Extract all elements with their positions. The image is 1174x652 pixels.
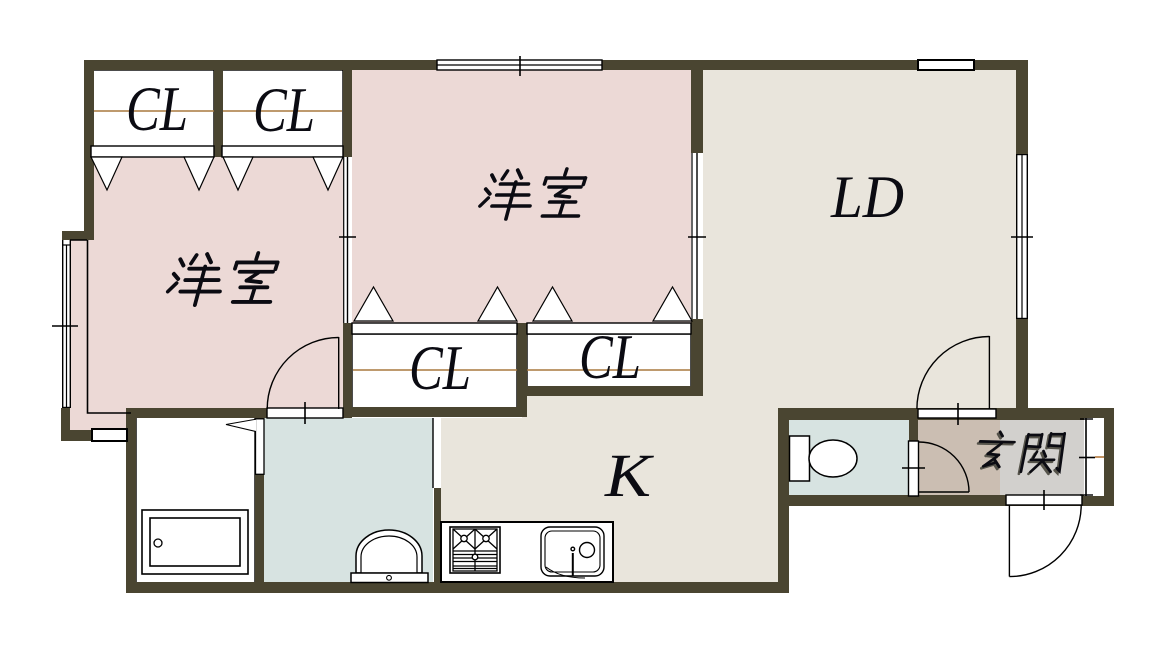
svg-text:CL: CL [409,333,471,403]
svg-text:CL: CL [579,322,641,392]
svg-text:K: K [604,443,655,510]
svg-text:LD: LD [830,164,904,230]
svg-text:CL: CL [126,74,188,144]
svg-text:CL: CL [253,75,315,145]
